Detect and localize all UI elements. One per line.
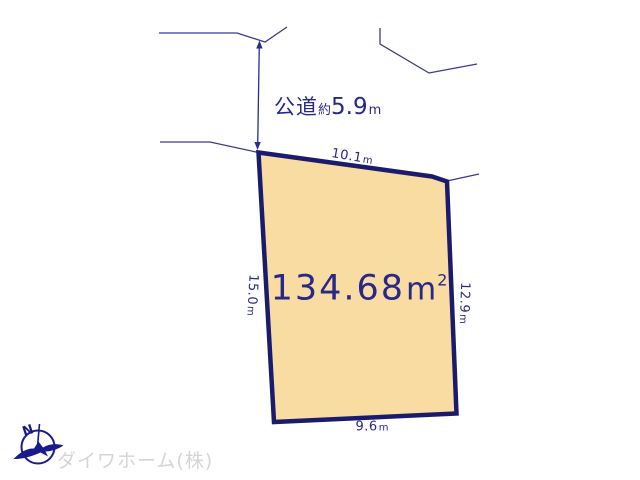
road-width-arrow-head-top: [256, 41, 262, 49]
site-plan-canvas: N 公道 約 5.9 m 10.1 m 15.0 m 12.9 m 9.6 m …: [0, 0, 640, 480]
road-type-text: 公道: [274, 97, 318, 118]
dimension-right: 12.9 m: [457, 282, 471, 324]
road-width-arrow: [254, 41, 262, 151]
plot-area-unit: m: [406, 275, 436, 306]
road-width-arrow-line: [258, 45, 260, 145]
road-lower-boundary-line: [160, 142, 259, 153]
company-watermark: ダイワホーム(株): [57, 452, 213, 471]
road-width-label: 公道 約 5.9 m: [274, 96, 381, 119]
dimension-bottom-value: 9.6: [356, 421, 378, 434]
compass-north-label: N: [21, 422, 36, 440]
neighbor-parcel-outline: [380, 28, 477, 73]
road-approx-text: 約: [318, 104, 331, 117]
road-upper-boundary-line: [159, 27, 287, 42]
plot-area-exponent: 2: [437, 273, 447, 289]
boundary-extension-line: [447, 174, 479, 181]
dimension-left-value: 15.0: [245, 274, 260, 306]
road-width-value: 5.9: [331, 96, 368, 119]
plot-area-value: 134.68: [271, 272, 405, 307]
dimension-right-unit: m: [457, 314, 467, 324]
dimension-top-unit: m: [362, 155, 373, 167]
road-width-unit: m: [369, 104, 382, 117]
plot-area-label: 134.68 m 2: [271, 272, 448, 307]
dimension-left: 15.0 m: [244, 274, 259, 316]
dimension-bottom: 9.6 m: [356, 421, 389, 434]
compass-icon: N: [14, 422, 64, 463]
dimension-left-unit: m: [244, 306, 254, 316]
road-width-arrow-head-bottom: [254, 142, 260, 150]
dimension-right-value: 12.9: [457, 282, 471, 313]
dimension-bottom-unit: m: [379, 424, 389, 434]
site-plan-drawing: N: [0, 0, 640, 480]
